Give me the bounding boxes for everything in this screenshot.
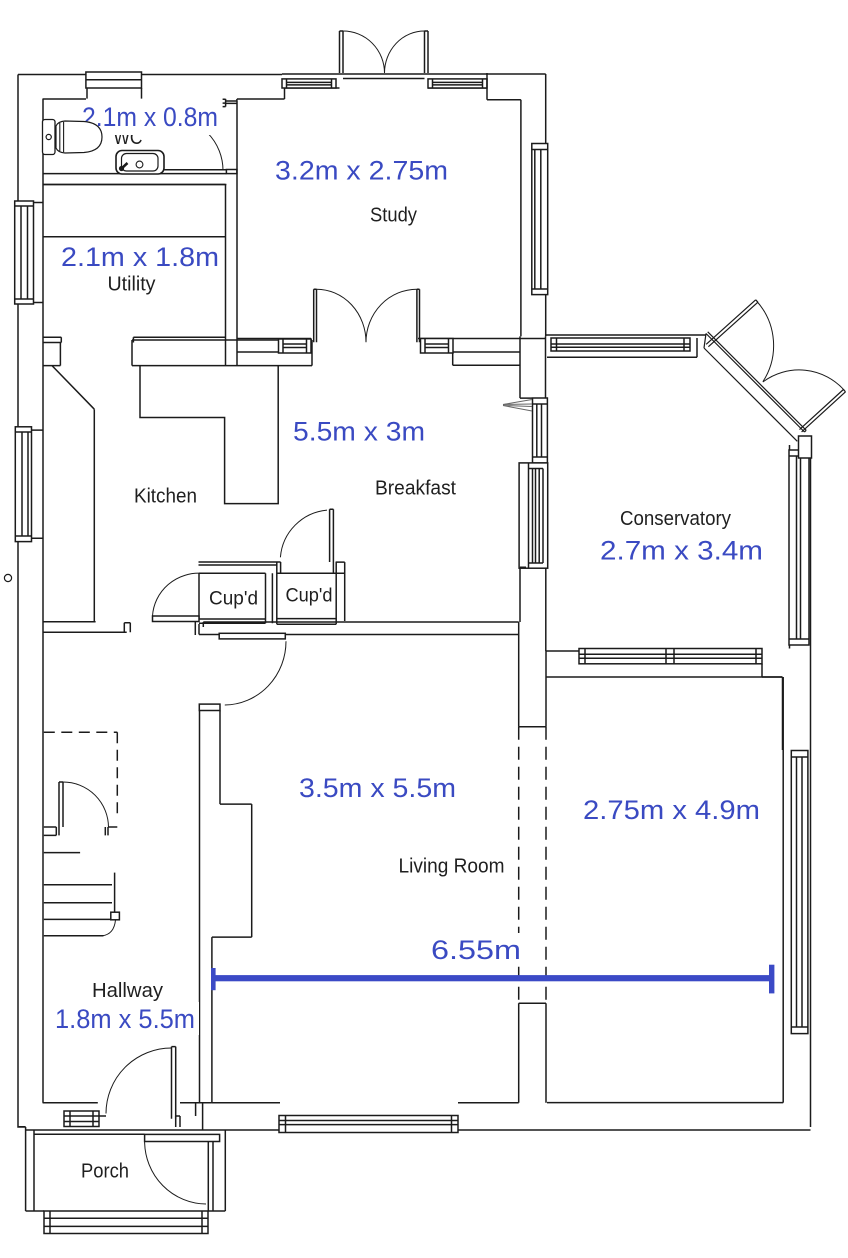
svg-text:Breakfast: Breakfast <box>375 478 456 500</box>
svg-text:Utility: Utility <box>108 274 156 296</box>
svg-text:Study: Study <box>370 205 417 227</box>
svg-text:Hallway: Hallway <box>92 980 163 1002</box>
svg-text:Cup'd: Cup'd <box>209 588 258 610</box>
svg-text:3.2m x 2.75m: 3.2m x 2.75m <box>275 156 448 186</box>
svg-text:3.5m x 5.5m: 3.5m x 5.5m <box>299 773 456 803</box>
svg-text:Porch: Porch <box>81 1161 129 1183</box>
svg-text:2.1m x 0.8m: 2.1m x 0.8m <box>82 102 218 132</box>
svg-text:2.75m x 4.9m: 2.75m x 4.9m <box>583 795 760 825</box>
svg-text:2.7m x 3.4m: 2.7m x 3.4m <box>600 536 763 566</box>
svg-text:1.8m x 5.5m: 1.8m x 5.5m <box>55 1004 195 1034</box>
svg-text:6.55m: 6.55m <box>431 935 521 965</box>
svg-text:Conservatory: Conservatory <box>620 508 731 530</box>
svg-text:Living Room: Living Room <box>399 856 505 878</box>
svg-text:2.1m x 1.8m: 2.1m x 1.8m <box>61 242 219 272</box>
svg-text:Kitchen: Kitchen <box>134 486 197 508</box>
svg-text:Cup'd: Cup'd <box>286 585 333 607</box>
svg-text:5.5m x 3m: 5.5m x 3m <box>293 417 425 447</box>
